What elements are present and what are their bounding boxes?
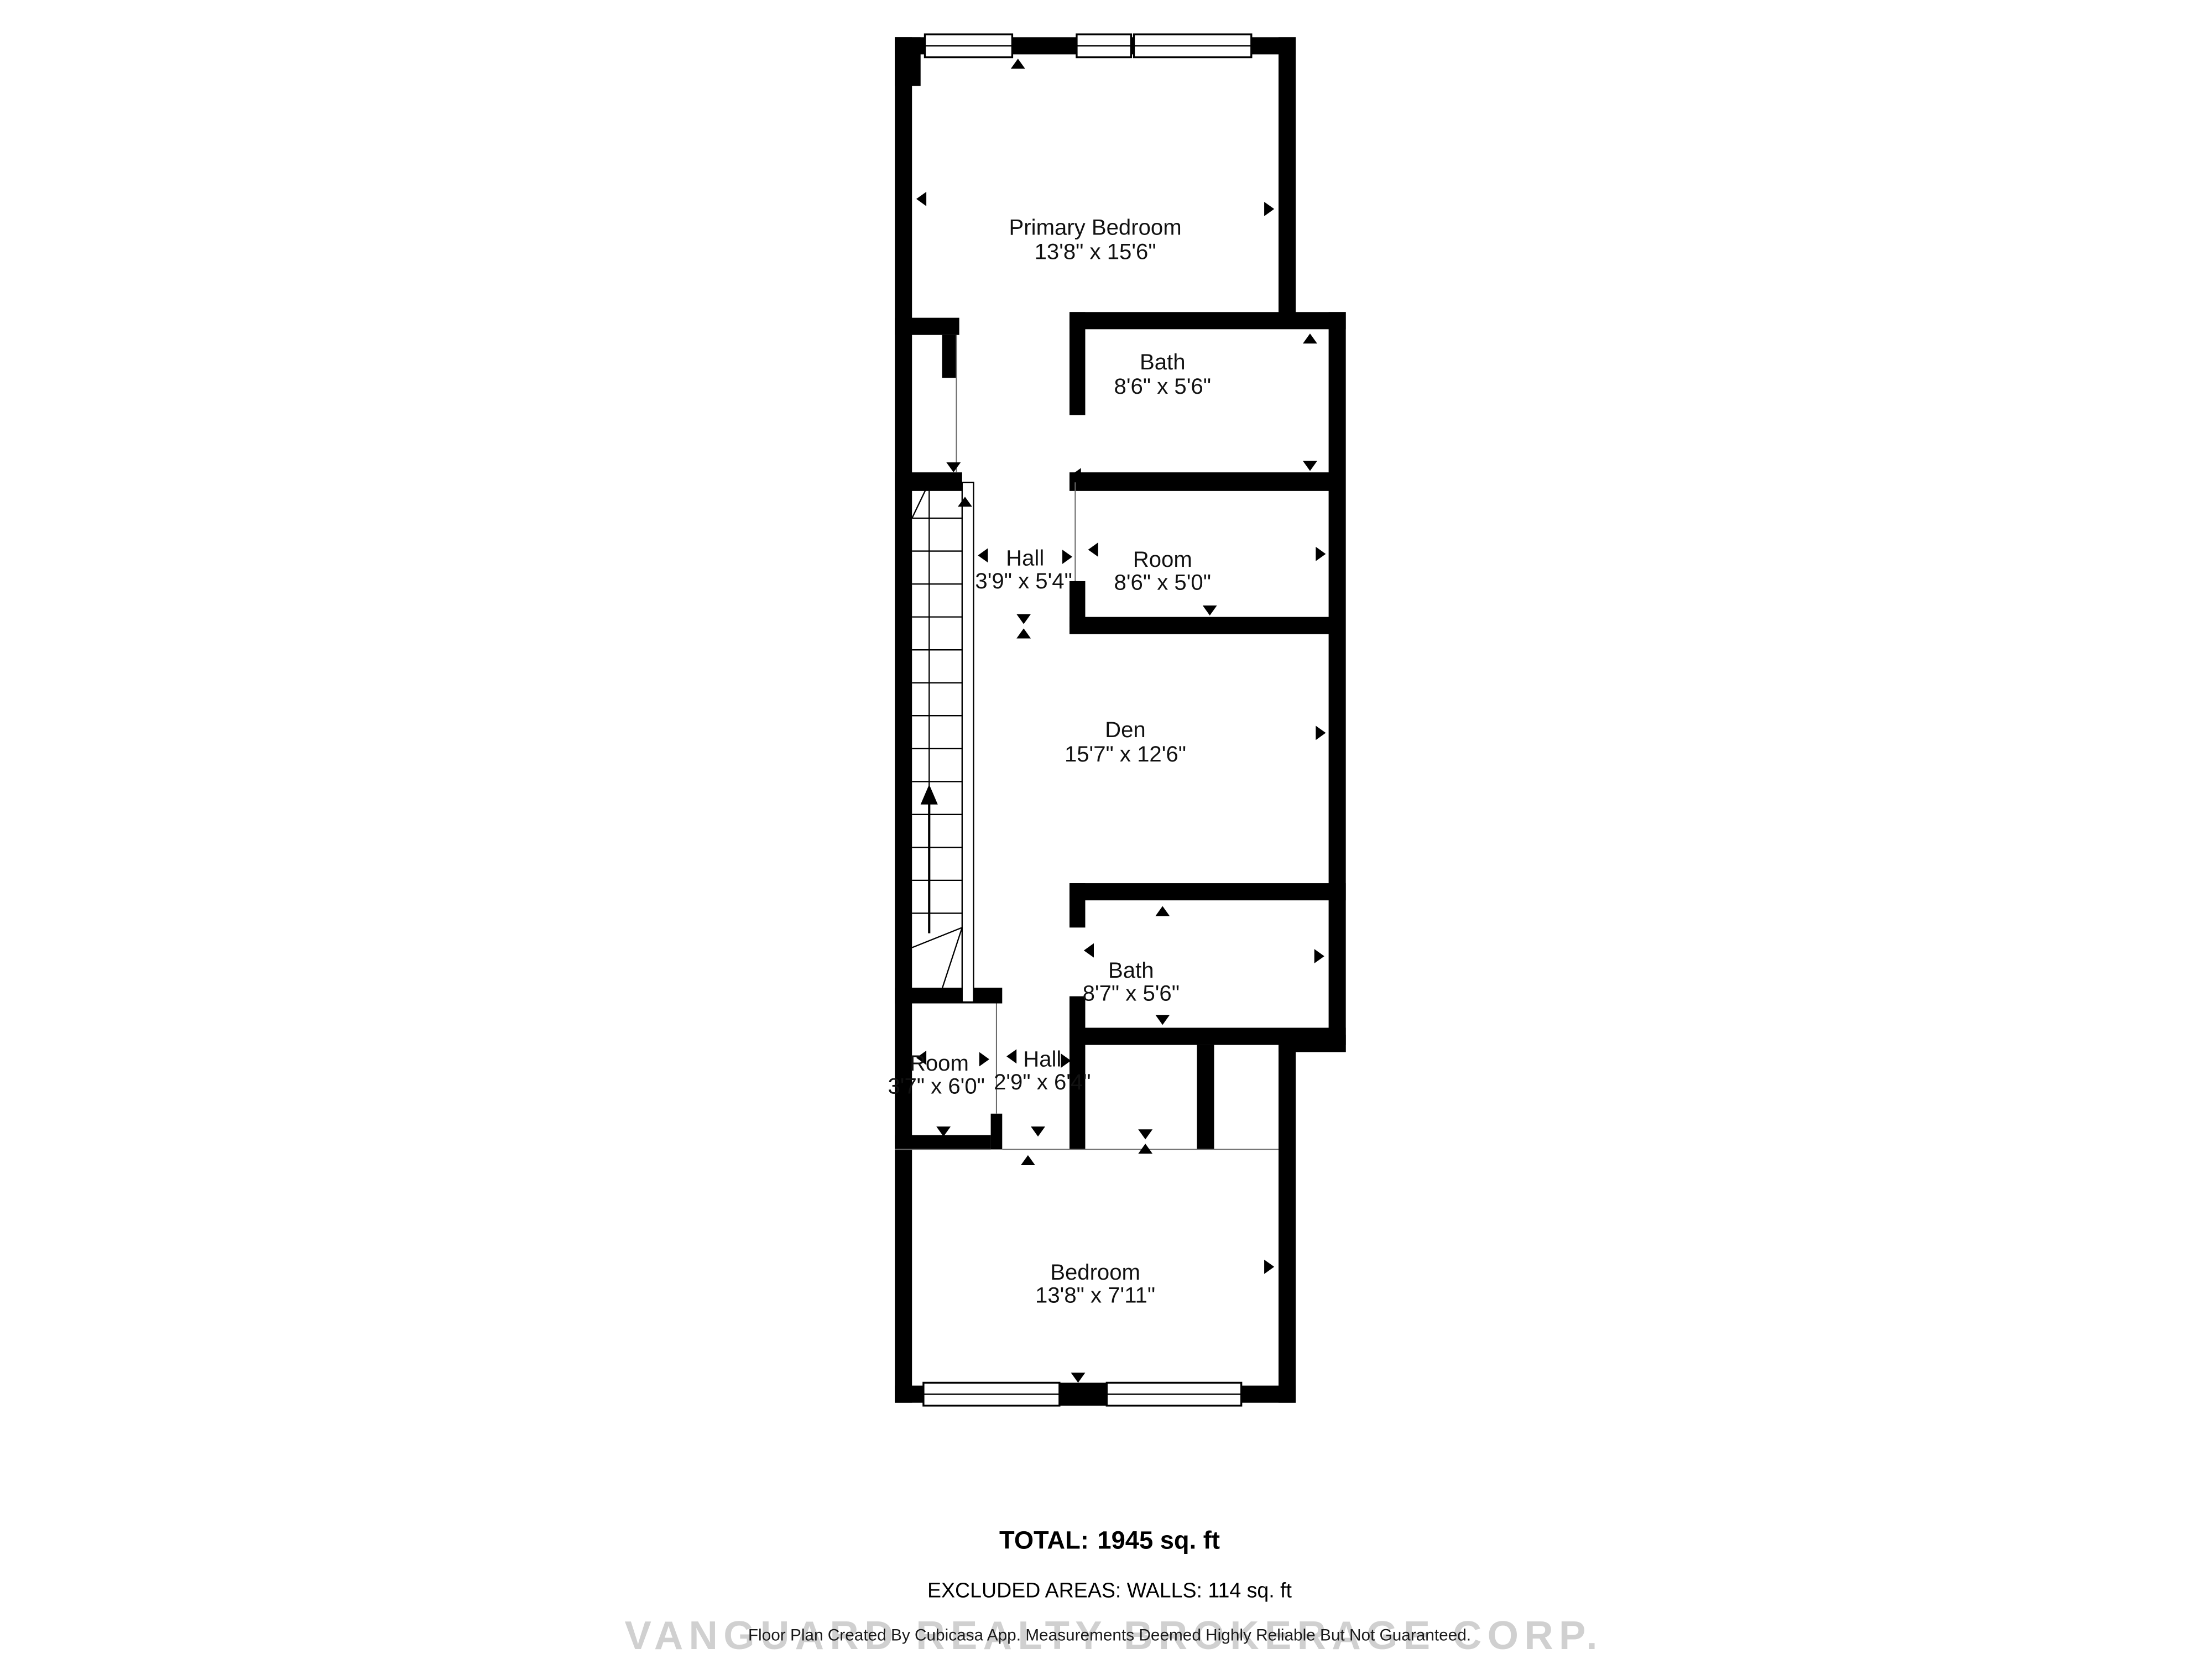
room-dims-den: 15'7" x 12'6" [1065,742,1186,766]
summary-block: VANGUARD REALTY BROKERAGE CORP. TOTAL:19… [625,1526,1603,1658]
total-area-line: TOTAL:1945 sq. ft [999,1526,1220,1554]
wall-bath2-left-upper [1070,883,1085,927]
marker-left-icon [978,548,988,562]
room-dims-room-upper: 8'6" x 5'0" [1114,570,1211,594]
wall-bath1-left-upper [1070,312,1085,415]
stair-handrail [962,482,974,1002]
room-dims-bath-upper: 8'6" x 5'6" [1114,374,1211,399]
wall-room2-top [895,988,1002,1003]
marker-down-icon [1071,1373,1086,1383]
marker-right-icon [1316,547,1326,561]
total-value: 1945 sq. ft [1097,1526,1220,1554]
room-label-bedroom: Bedroom [1050,1260,1140,1285]
marker-right-icon [1062,550,1072,564]
stair-winder-1 [912,927,962,947]
wall-stub-below-bath2 [1197,1045,1214,1150]
room-label-bath-upper: Bath [1140,349,1186,374]
room-label-hall-upper: Hall [1006,545,1044,570]
room-label-bath-lower: Bath [1108,958,1154,983]
marker-down-icon [1155,1015,1170,1025]
marker-down-icon [1031,1126,1045,1136]
room-dims-bedroom: 13'8" x 7'11" [1035,1282,1155,1307]
wall-room2-right-stub [991,1114,1003,1150]
marker-down-icon [1138,1129,1152,1139]
floor-plan-drawing: Primary Bedroom 13'8" x 15'6" Bath 8'6" … [0,0,2212,1659]
marker-right-icon [1314,949,1324,963]
marker-right-icon [1316,726,1326,740]
wall-bath2-bottom [1070,1027,1346,1045]
marker-right-icon [1264,1260,1274,1274]
marker-up-icon [1138,1144,1152,1154]
wall-exterior-left [895,37,912,1402]
room-label-hall-lower: Hall [1023,1046,1061,1071]
room-dims-hall-upper: 3'9" x 5'4" [975,568,1072,593]
wall-bath1-top [1070,312,1346,329]
marker-left-icon [1088,542,1098,557]
marker-right-icon [1264,202,1274,216]
marker-left-icon [1084,943,1094,958]
floor-plan-page: Primary Bedroom 13'8" x 15'6" Bath 8'6" … [0,0,2212,1659]
room-label-room-upper: Room [1133,547,1192,572]
marker-down-icon [936,1126,951,1136]
marker-down-icon [946,462,961,472]
disclaimer-line: Floor Plan Created By Cubicasa App. Meas… [748,1626,1471,1644]
room-label-primary-bedroom: Primary Bedroom [1009,215,1182,240]
wall-room2-bottom [895,1135,990,1150]
room-dims-room-lower: 3'7" x 6'0" [888,1074,985,1099]
room-label-den: Den [1105,717,1146,742]
wall-exterior-right-outer [1329,312,1346,1052]
room-dims-hall-lower: 2'9" x 6'4" [994,1070,1091,1094]
wall-room1-bottom [1070,617,1337,634]
marker-down-icon [1303,461,1317,471]
marker-right-icon [1061,1053,1071,1068]
stair-up-arrow-icon [921,784,938,804]
staircase [912,482,973,1002]
wall-exterior-right-upper [1279,37,1296,317]
marker-left-icon [916,192,926,206]
room-dims-primary-bedroom: 13'8" x 15'6" [1035,239,1156,264]
total-label: TOTAL: [999,1526,1089,1554]
marker-down-icon [1203,606,1217,615]
wall-closet-top [895,318,959,335]
marker-up-icon [1155,906,1170,916]
marker-up-icon [1011,59,1025,69]
wall-closet-stub [942,335,957,378]
marker-down-icon [1016,614,1031,624]
marker-up-icon [1016,628,1031,638]
room-label-room-lower: Room [910,1051,969,1076]
marker-up-icon [1303,333,1317,343]
wall-corner-block-top-left [895,37,921,86]
wall-exterior-right-lower [1279,1035,1296,1402]
room-dims-bath-lower: 8'7" x 5'6" [1083,980,1180,1005]
wall-stairs-top [895,472,962,491]
marker-right-icon [979,1052,989,1067]
marker-up-icon [1021,1155,1035,1165]
marker-left-icon [1006,1049,1016,1063]
wall-bath2-top [1070,883,1346,900]
excluded-areas-line: EXCLUDED AREAS: WALLS: 114 sq. ft [927,1579,1292,1602]
wall-bottom-door-segment [1060,1383,1107,1405]
wall-bath1-bottom [1070,472,1337,491]
